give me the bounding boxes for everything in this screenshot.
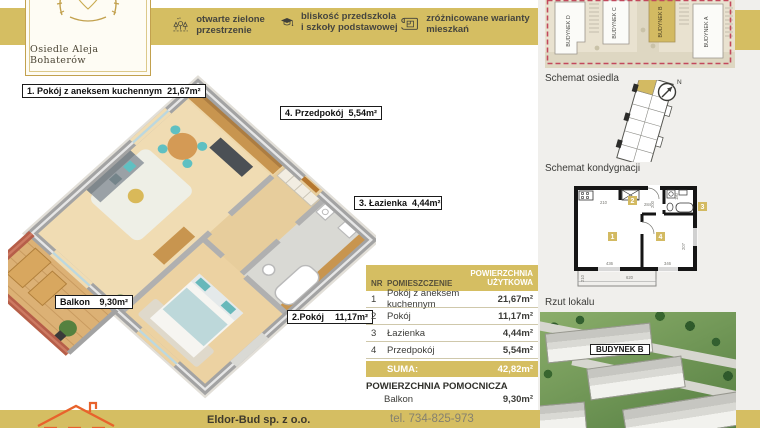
- compass-north-label: N: [677, 79, 682, 86]
- unit-floor-plan-2d: 1 2 3 4 210 284 200 180 436 346 207 210 …: [570, 176, 710, 294]
- feature-item-school: bliskość przedszkola i szkoły podstawowe…: [280, 9, 398, 35]
- building-label: BUDYNEK B: [658, 6, 664, 38]
- estate-aerial-render: BUDYNEK B: [540, 312, 736, 428]
- room-label-area: 21,67m²: [167, 86, 201, 96]
- room-number-badge: 2: [628, 196, 637, 205]
- trees-icon: [172, 12, 189, 38]
- brand-logo-card: AB Osiedle Aleja Bohaterów: [25, 0, 151, 76]
- header-area: POWIERZCHNIA UŻYTKOWA: [469, 269, 533, 288]
- table-row: 1 Pokój z aneksem kuchennym 21,67m²: [366, 291, 538, 308]
- dimension-label: 210: [580, 274, 585, 282]
- room-label-area: 5,54m²: [349, 108, 378, 118]
- room-number-badge: 4: [656, 232, 665, 241]
- room-label-name: 2.Pokój: [292, 312, 324, 322]
- svg-text:2: 2: [631, 198, 635, 205]
- feature-label: otwarte zielone przestrzenie: [196, 14, 280, 36]
- brand-name: Osiedle Aleja Bohaterów: [30, 44, 146, 66]
- flyer-page: AB Osiedle Aleja Bohaterów otwarte zielo…: [0, 0, 760, 428]
- room-number-badge: 1: [608, 232, 617, 241]
- feature-item-apartment-variants: zróżnicowane warianty mieszkań: [400, 12, 532, 36]
- svg-text:3: 3: [701, 204, 705, 211]
- company-logo-house-icon: [28, 401, 124, 428]
- svg-text:1: 1: [611, 234, 615, 241]
- auxiliary-area-row: Balkon 9,30m²: [366, 392, 538, 407]
- room-label-living: 1. Pokój z aneksem kuchennym 21,67m²: [22, 84, 206, 98]
- table-row: 2 Pokój 11,17m²: [366, 308, 538, 325]
- svg-text:4: 4: [659, 234, 663, 241]
- brand-logo-frame: AB Osiedle Aleja Bohaterów: [29, 0, 147, 72]
- dimension-label: 207: [681, 242, 686, 250]
- estate-floor-schematic: [568, 80, 728, 162]
- area-table: NR POMIESZCZENIE POWIERZCHNIA UŻYTKOWA 1…: [366, 265, 538, 407]
- dimension-label: 620: [626, 275, 634, 280]
- room-label-area: 9,30m²: [99, 297, 128, 307]
- budynek-b-tag: BUDYNEK B: [590, 344, 650, 355]
- header-room: POMIESZCZENIE: [387, 279, 469, 288]
- dimension-label: 346: [664, 261, 672, 266]
- header-nr: NR: [371, 279, 387, 288]
- table-row: 4 Przedpokój 5,54m²: [366, 342, 538, 359]
- room-label-area: 4,44m²: [412, 198, 441, 208]
- brand-monogram-letters: AB: [77, 0, 98, 4]
- graduation-cap-icon: [280, 9, 294, 35]
- gold-accent-block: [735, 10, 760, 50]
- room-label-balcony: Balkon 9,30m²: [55, 295, 133, 309]
- table-sum-row: SUMA: 42,82m²: [366, 361, 538, 377]
- unit-plan-label: Rzut lokalu: [545, 297, 594, 308]
- phone-number: tel. 734-825-973: [390, 413, 474, 425]
- room-label-name: 4. Przedpokój: [285, 108, 344, 118]
- room-label-area: 11,17m²: [335, 312, 368, 322]
- render-building: [540, 401, 587, 428]
- brand-monogram-icon: AB: [46, 0, 130, 33]
- feature-label: zróżnicowane warianty mieszkań: [426, 13, 532, 35]
- building-label: BUDYNEK D: [566, 15, 572, 47]
- feature-label: bliskość przedszkola i szkoły podstawowe…: [301, 11, 398, 33]
- dimension-label: 180: [674, 192, 679, 200]
- feature-item-green-spaces: otwarte zielone przestrzenie: [172, 12, 280, 38]
- room-label-name: 1. Pokój z aneksem kuchennym: [27, 86, 162, 96]
- site-plan-map: BUDYNEK D BUDYNEK C BUDYNEK B BUDYNEK A: [545, 0, 735, 68]
- room-label-bedroom: 2.Pokój 11,17m²: [287, 310, 373, 324]
- dimension-label: 210: [600, 200, 608, 205]
- dimension-label: 436: [606, 261, 614, 266]
- dimension-label: 200: [650, 200, 655, 208]
- room-label-name: 3. Łazienka: [359, 198, 407, 208]
- table-row: 3 Łazienka 4,44m²: [366, 325, 538, 342]
- room-label-name: Balkon: [60, 297, 90, 307]
- blueprint-icon: [400, 12, 419, 36]
- building-label: BUDYNEK C: [612, 7, 618, 39]
- floorplan-3d-render: [8, 72, 376, 402]
- floor-schema-label: Schemat kondygnacji: [545, 163, 640, 174]
- compass-icon: N: [652, 76, 686, 106]
- auxiliary-area-title: POWIERZCHNIA POMOCNICZA: [366, 381, 538, 392]
- building-label: BUDYNEK A: [704, 16, 710, 47]
- room-label-hall: 4. Przedpokój 5,54m²: [280, 106, 382, 120]
- room-number-badge: 3: [698, 202, 707, 211]
- estate-schema-label: Schemat osiedla: [545, 73, 619, 84]
- room-label-bath: 3. Łazienka 4,44m²: [354, 196, 442, 210]
- company-name: Eldor-Bud sp. z o.o.: [207, 414, 310, 426]
